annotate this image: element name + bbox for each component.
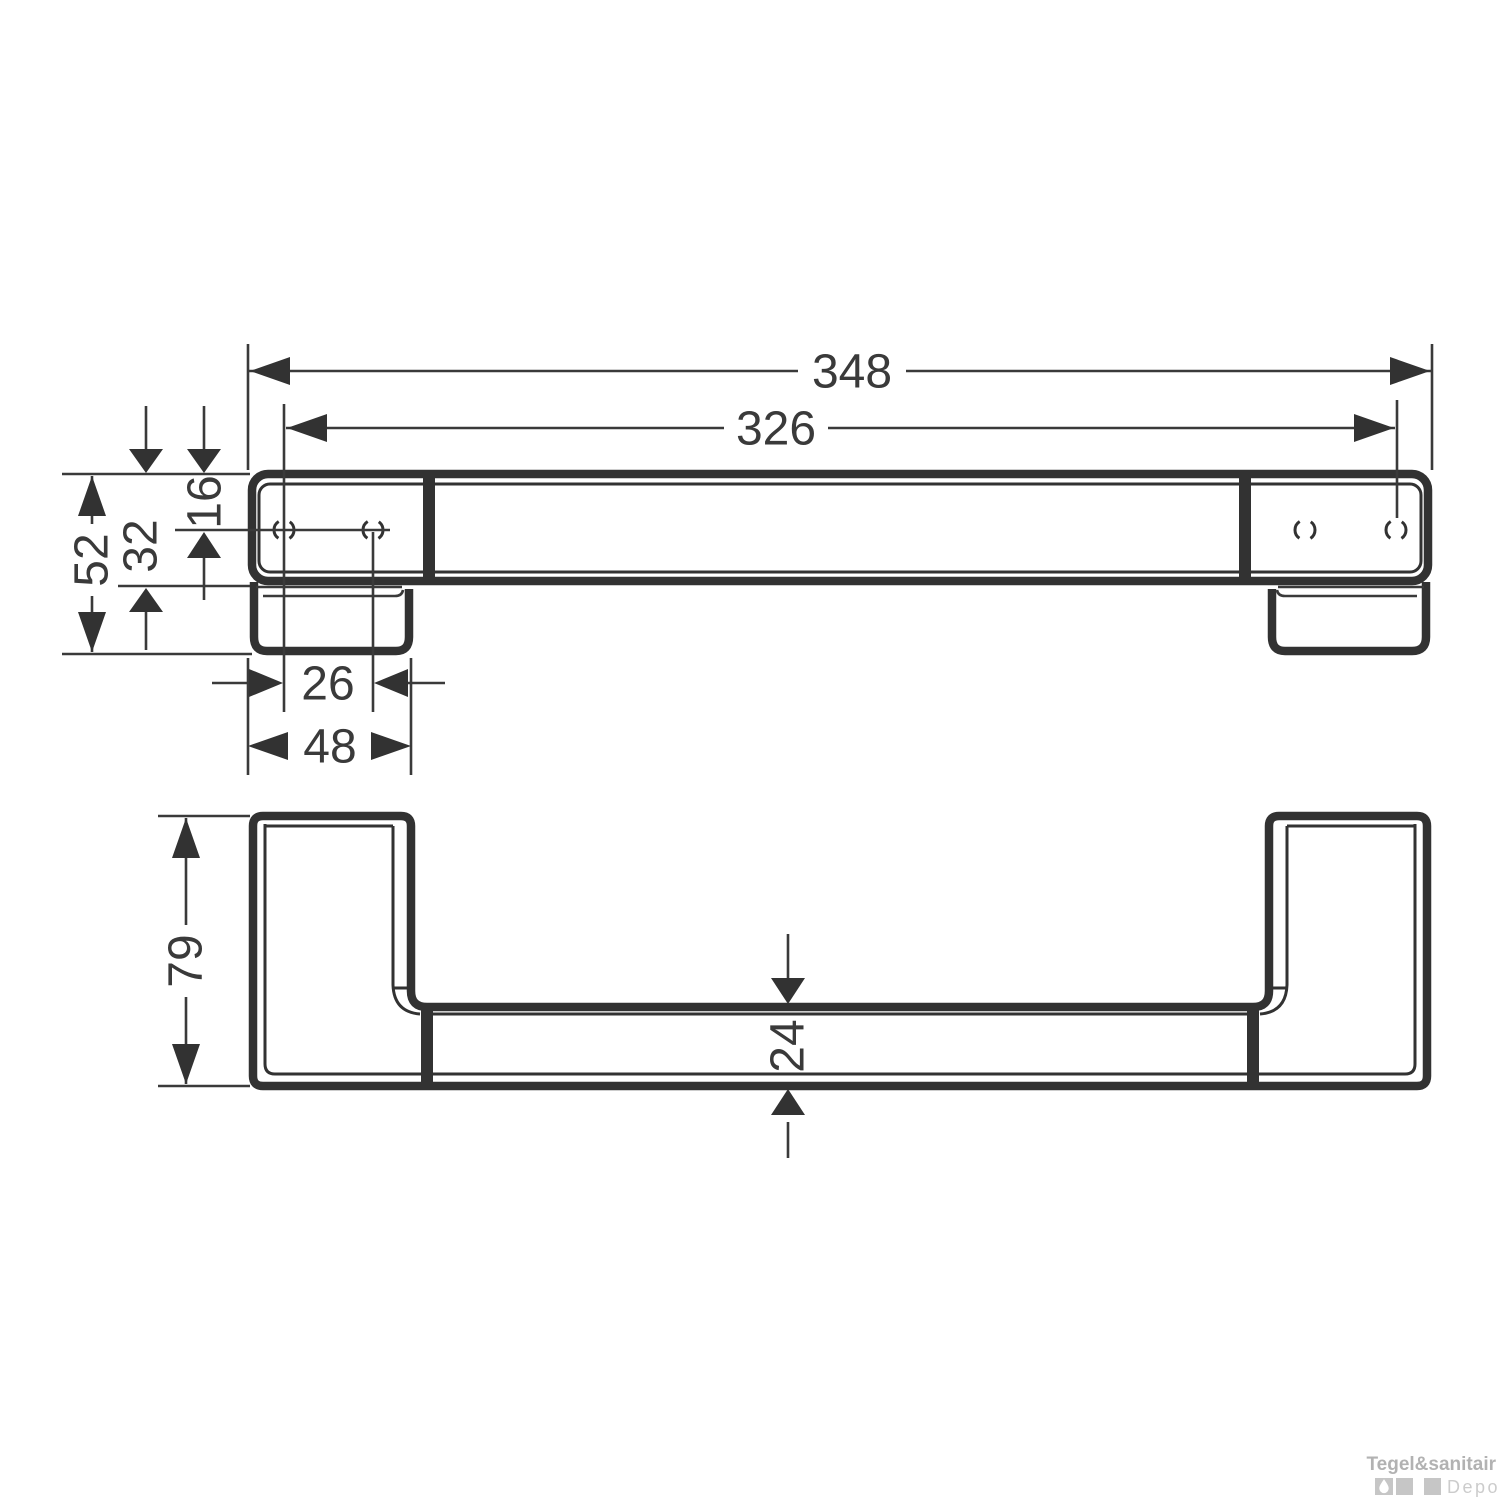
arrowhead (187, 449, 221, 473)
dim-label-hole-pitch: 26 (301, 658, 354, 711)
arrowhead (187, 532, 221, 558)
right-inner-curve (1260, 826, 1287, 1014)
dim-label-bar-height: 32 (115, 519, 168, 572)
arrowhead (1390, 357, 1430, 385)
dim-326: 326 (284, 400, 1397, 712)
logo-square (1424, 1478, 1441, 1495)
left-inner-curve (393, 826, 420, 1014)
watermark-logo: Tegel&sanitair Depot (1366, 1454, 1500, 1497)
arrowhead (78, 476, 106, 516)
dim-label-end-height: 52 (66, 533, 119, 586)
front-view (175, 471, 1428, 651)
arrowhead (374, 669, 408, 697)
left-foot (254, 582, 409, 651)
arrowhead (771, 978, 805, 1004)
right-foot-outline (1272, 582, 1426, 651)
mounting-hole (1386, 520, 1406, 540)
arrowhead (250, 357, 290, 385)
arrowhead (78, 612, 106, 652)
dim-label-hole-offset: 16 (179, 475, 232, 528)
dim-348: 348 (248, 344, 1432, 470)
right-foot (1272, 582, 1426, 651)
dimension-drawing: 348 326 52 32 (0, 0, 1500, 1500)
arrowhead (287, 414, 327, 442)
watermark-brand-text: Tegel&sanitair (1366, 1454, 1496, 1475)
dimensions: 348 326 52 32 (62, 344, 1432, 1158)
right-foot-inner-line (1277, 590, 1417, 596)
dim-16: 16 (179, 406, 232, 600)
dim-label-hole-span: 326 (736, 403, 816, 456)
arrowhead (129, 449, 163, 473)
arrowhead (371, 732, 411, 760)
dim-label-end-width: 48 (303, 721, 356, 774)
profile-view (253, 816, 1427, 1086)
arrowhead (249, 669, 283, 697)
profile-inner-edge (265, 824, 1415, 1074)
dim-label-total-length: 348 (812, 346, 892, 399)
logo-square (1396, 1478, 1413, 1495)
arrowhead (172, 818, 200, 858)
arrowhead (1354, 414, 1394, 442)
dim-label-depth: 79 (160, 934, 213, 987)
drawing-page: 348 326 52 32 (0, 0, 1500, 1500)
mounting-hole (1295, 520, 1315, 540)
dim-79: 79 (158, 816, 250, 1086)
arrowhead (248, 732, 288, 760)
watermark-suffix-text: Depot (1447, 1477, 1500, 1497)
arrowhead (129, 588, 163, 612)
arrowhead (172, 1044, 200, 1084)
dim-label-bar-depth: 24 (762, 1019, 815, 1072)
dim-24: 24 (762, 934, 815, 1158)
arrowhead (771, 1089, 805, 1115)
left-foot-outline (254, 582, 409, 651)
